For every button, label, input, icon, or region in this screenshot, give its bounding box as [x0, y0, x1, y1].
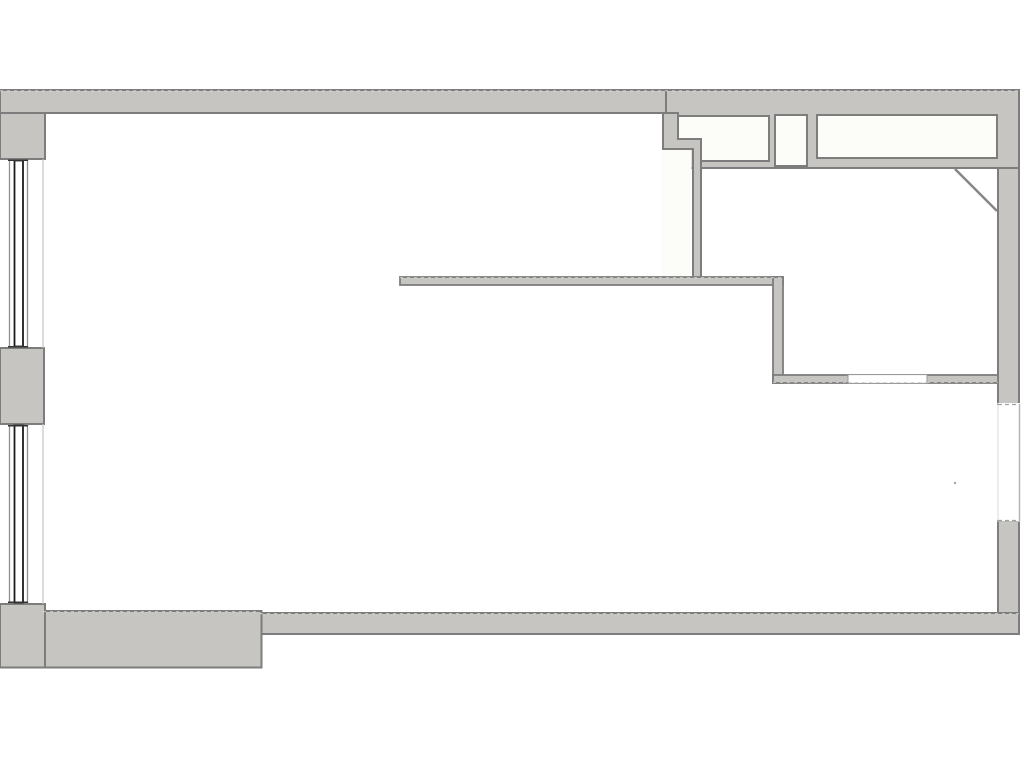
room-top-right — [817, 115, 997, 158]
left-wall-pier — [0, 348, 44, 424]
plan-speck — [954, 482, 956, 484]
room-shaft — [775, 115, 807, 166]
bottom-wall-main — [260, 613, 1019, 634]
interior-wall-vertical — [773, 277, 783, 383]
open-area-notch — [662, 150, 692, 278]
interior-wall-long — [400, 277, 783, 285]
bottom-wall-left — [43, 611, 262, 668]
door-diagonal-line — [955, 169, 997, 211]
floor-plan-canvas — [0, 0, 1024, 768]
bottom-wall-left-corner — [0, 604, 45, 668]
floor-plan-stage — [0, 0, 1024, 768]
right-window-gap — [998, 403, 1022, 522]
top-wall — [0, 90, 666, 113]
window1-frame — [15, 161, 24, 347]
window2-frame — [15, 426, 24, 603]
